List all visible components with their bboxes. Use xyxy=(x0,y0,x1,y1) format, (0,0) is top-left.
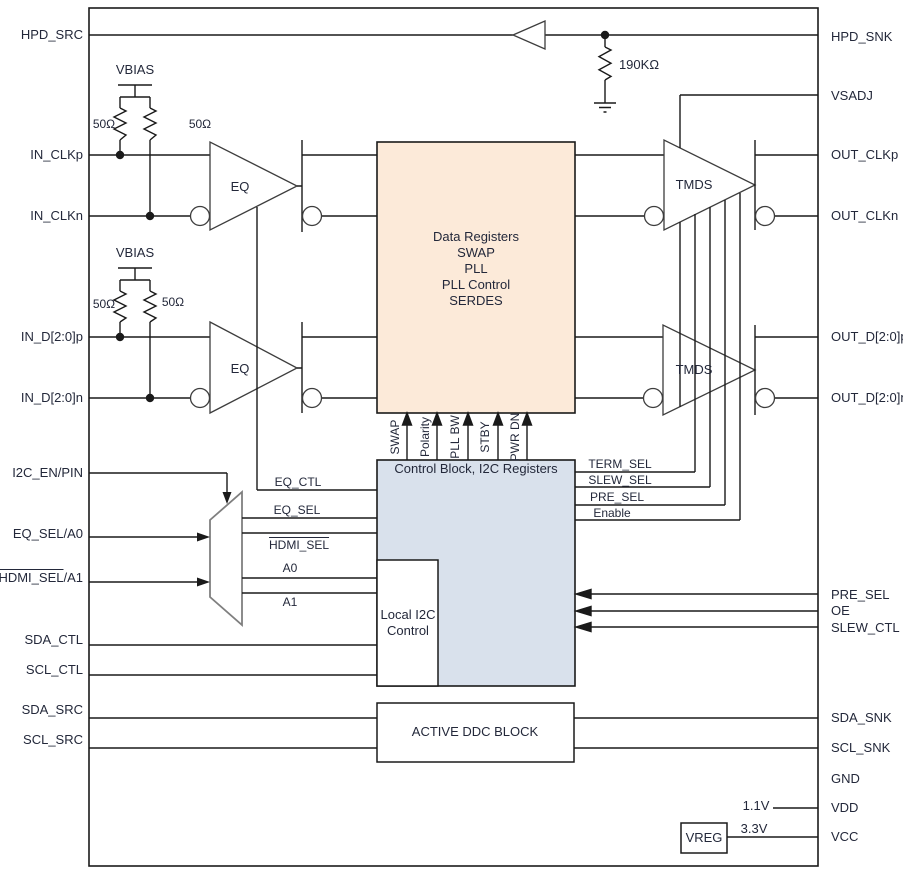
vreg-label: VREG xyxy=(686,831,723,845)
local-i2c-line-1: Local I2C xyxy=(381,607,436,623)
coupling-bar xyxy=(297,140,302,232)
pin-label-sda-src: SDA_SRC xyxy=(22,703,83,717)
block-diagram: HPD_SRC IN_CLKp IN_CLKn IN_D[2:0]p IN_D[… xyxy=(0,0,903,871)
coupling-bar xyxy=(297,322,302,413)
serdes-line-1: Data Registers xyxy=(433,229,519,245)
pin-label-sda-ctl: SDA_CTL xyxy=(24,633,83,647)
pin-label-hpd-src: HPD_SRC xyxy=(21,28,83,42)
serdes-line-4: PLL Control xyxy=(433,277,519,293)
r50-label-data-left: 50Ω xyxy=(93,297,115,311)
net-label-pll-bw: PLL BW xyxy=(448,415,462,459)
net-label-polarity: Polarity xyxy=(418,417,432,457)
pin-label-vsadj: VSADJ xyxy=(831,89,873,103)
v-supply-label: 3.3V xyxy=(741,822,768,836)
hpd-network xyxy=(89,21,818,112)
invert-bubble xyxy=(756,207,775,226)
pin-label-in-clkp: IN_CLKp xyxy=(30,148,83,162)
eq-triangle-data xyxy=(210,322,297,413)
tmds-label-data: TMDS xyxy=(676,363,713,377)
serdes-block-text: Data Registers SWAP PLL PLL Control SERD… xyxy=(433,229,519,309)
pin-label-i2c-en: I2C_EN/PIN xyxy=(12,466,83,480)
pin-label-in-clkn: IN_CLKn xyxy=(30,209,83,223)
net-label-slew-sel: SLEW_SEL xyxy=(588,473,651,487)
local-i2c-text: Local I2C Control xyxy=(381,607,436,639)
serdes-line-3: PLL xyxy=(433,261,519,277)
net-label-swap: SWAP xyxy=(388,420,402,455)
arrowhead-right xyxy=(197,533,210,542)
invert-bubble xyxy=(645,207,664,226)
pin-label-in-dp: IN_D[2:0]p xyxy=(21,330,83,344)
vbias-label-clk: VBIAS xyxy=(116,63,154,77)
arrowhead-up xyxy=(464,413,473,425)
i2c-ctl-wires xyxy=(89,645,377,675)
data-input-network xyxy=(89,268,377,413)
v-core-label: 1.1V xyxy=(743,799,770,813)
slew-sel-wire xyxy=(575,207,710,487)
arrowhead-up xyxy=(523,413,532,425)
pin-label-vdd: VDD xyxy=(831,801,858,815)
net-label-eq-sel: EQ_SEL xyxy=(274,503,321,517)
arrowhead-up xyxy=(433,413,442,425)
pin-label-out-dp: OUT_D[2:0]p xyxy=(831,330,903,344)
pin-label-in-dn: IN_D[2:0]n xyxy=(21,391,83,405)
net-label-a0: A0 xyxy=(283,561,298,575)
eq-ctl-wire xyxy=(257,207,377,490)
mux-output-wires xyxy=(242,518,377,593)
eq-label-data: EQ xyxy=(231,362,250,376)
resistor-50-clk-n xyxy=(144,108,156,140)
arrowhead-up xyxy=(403,413,412,425)
control-block-title: Control Block, I2C Registers xyxy=(394,462,557,476)
arrowhead-left xyxy=(576,607,591,616)
pin-label-sda-snk: SDA_SNK xyxy=(831,711,892,725)
pin-label-hpd-snk: HPD_SNK xyxy=(831,30,892,44)
pin-label-gnd: GND xyxy=(831,772,860,786)
net-label-hdmi-sel: HDMI_SEL xyxy=(269,538,329,552)
net-label-pre-sel-out: PRE_SEL xyxy=(590,490,644,504)
resistor-190k xyxy=(599,47,611,80)
pin-label-out-clkn: OUT_CLKn xyxy=(831,209,898,223)
ground-symbol xyxy=(594,103,616,112)
arrowhead-up xyxy=(494,413,503,425)
mux xyxy=(210,492,242,625)
strap-mux-network xyxy=(89,473,377,625)
serdes-line-2: SWAP xyxy=(433,245,519,261)
arrowhead-left xyxy=(576,590,591,599)
local-i2c-line-2: Control xyxy=(381,623,436,639)
net-label-stby: STBY xyxy=(478,421,492,452)
pin-label-oe: OE xyxy=(831,604,850,618)
net-label-a1: A1 xyxy=(283,595,298,609)
serdes-line-5: SERDES xyxy=(433,293,519,309)
net-label-eq-ctl: EQ_CTL xyxy=(275,475,322,489)
pin-label-out-clkp: OUT_CLKp xyxy=(831,148,898,162)
pin-label-eq-sel-a0: EQ_SEL/A0 xyxy=(13,527,83,541)
pin-label-vcc: VCC xyxy=(831,830,858,844)
hpd-buffer-triangle xyxy=(513,21,545,49)
invert-bubble xyxy=(191,207,210,226)
eq-label-clk: EQ xyxy=(231,180,250,194)
r190k-label: 190KΩ xyxy=(619,58,659,72)
r50-label-data-right: 50Ω xyxy=(162,295,184,309)
r50-label-clk-left: 50Ω xyxy=(93,117,115,131)
a1-suffix: /A1 xyxy=(63,570,83,585)
invert-bubble xyxy=(756,389,775,408)
net-label-pwr-dn: PWR DN xyxy=(508,413,522,462)
pin-label-out-dn: OUT_D[2:0]n xyxy=(831,391,903,405)
vbias-label-data: VBIAS xyxy=(116,246,154,260)
pin-label-hdmi-sel-a1: HDMI_SEL/A1 xyxy=(0,571,83,585)
pin-label-pre-sel: PRE_SEL xyxy=(831,588,890,602)
ddc-block-label: ACTIVE DDC BLOCK xyxy=(412,725,538,739)
invert-bubble xyxy=(644,389,663,408)
hdmi-sel-overlined: HDMI_SEL xyxy=(0,570,63,585)
pin-label-scl-src: SCL_SRC xyxy=(23,733,83,747)
net-label-term-sel: TERM_SEL xyxy=(588,457,651,471)
resistor-50-d-n xyxy=(144,291,156,322)
resistor-50-clk-p xyxy=(114,108,126,140)
resistor-50-d-p xyxy=(114,291,126,322)
vsadj-wire xyxy=(680,95,818,407)
net-label-enable: Enable xyxy=(593,506,630,520)
tmds-label-clk: TMDS xyxy=(676,178,713,192)
r50-label-clk-right: 50Ω xyxy=(189,117,211,131)
arrowhead-right xyxy=(197,578,210,587)
invert-bubble xyxy=(303,207,322,226)
pin-label-slew-ctl: SLEW_CTL xyxy=(831,621,900,635)
invert-bubble xyxy=(191,389,210,408)
term-sel-wire xyxy=(575,214,695,472)
pin-label-scl-ctl: SCL_CTL xyxy=(26,663,83,677)
pin-label-scl-snk: SCL_SNK xyxy=(831,741,890,755)
eq-triangle-clk xyxy=(210,142,297,230)
arrowhead-left xyxy=(576,623,591,632)
clk-input-network xyxy=(89,85,377,232)
invert-bubble xyxy=(303,389,322,408)
right-control-inputs xyxy=(576,590,818,632)
